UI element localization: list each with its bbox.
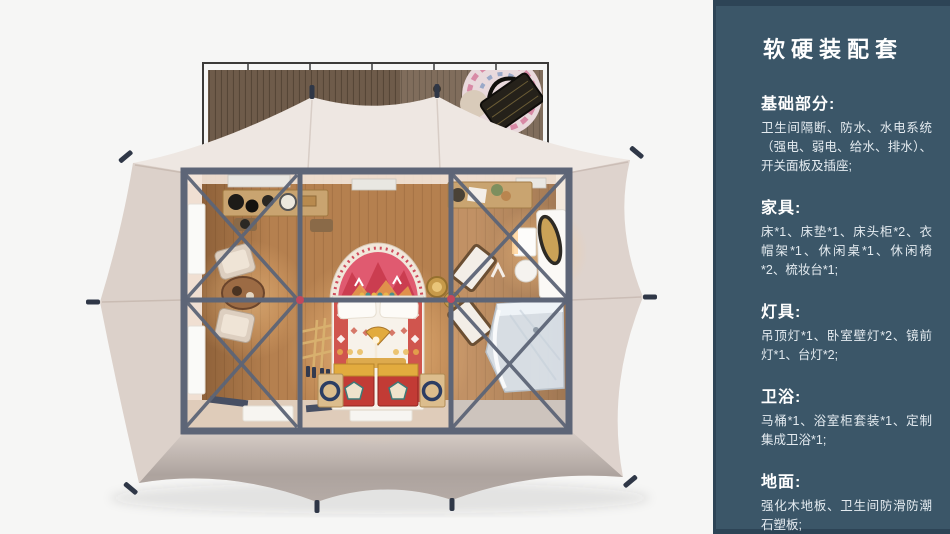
tent-stake-left	[86, 300, 100, 305]
window-left-lower	[188, 326, 205, 394]
tent-stake-top-2	[435, 84, 440, 98]
section-basics-body: 卫生间隔断、防水、水电系统（强电、弱电、给水、排水）、开关面板及插座;	[761, 119, 932, 176]
section-furniture: 家具: 床*1、床垫*1、床头柜*2、衣帽架*1、休闲桌*1、休闲椅*2、梳妆台…	[761, 194, 932, 280]
window-left-upper	[188, 204, 205, 274]
frame-joint-left	[296, 296, 304, 304]
entry-band-right	[452, 400, 568, 428]
sidebar-title: 软硬装配套	[734, 32, 932, 64]
section-lighting: 灯具: 吊顶灯*1、卧室壁灯*2、镜前灯*1、台灯*2;	[761, 298, 932, 365]
section-furniture-body: 床*1、床垫*1、床头柜*2、衣帽架*1、休闲桌*1、休闲椅*2、梳妆台*1;	[761, 223, 932, 280]
section-flooring-heading: 地面:	[761, 468, 932, 492]
section-bathroom-body: 马桶*1、浴室柜套装*1、定制集成卫浴*1;	[761, 412, 932, 450]
section-lighting-heading: 灯具:	[761, 298, 932, 322]
room	[186, 172, 588, 445]
nightstand-right	[420, 374, 445, 407]
stool-left-2	[310, 219, 333, 232]
hat-2	[246, 200, 259, 213]
section-basics-heading: 基础部分:	[761, 90, 932, 114]
console-table-right	[448, 182, 532, 208]
page: 软硬装配套 基础部分: 卫生间隔断、防水、水电系统（强电、弱电、给水、排水）、开…	[0, 0, 950, 534]
tent-stake-bottom-2	[315, 500, 320, 513]
console-box	[302, 196, 316, 206]
gold-tray-table	[427, 277, 447, 297]
section-flooring: 地面: 强化木地板、卫生间防滑防潮石塑板;	[761, 468, 932, 534]
floorplan-render	[0, 0, 713, 534]
nightstand-left	[318, 374, 343, 407]
section-bathroom-heading: 卫浴:	[761, 383, 932, 407]
section-furniture-heading: 家具:	[761, 194, 932, 218]
section-flooring-body: 强化木地板、卫生间防滑防潮石塑板;	[761, 497, 932, 534]
section-basics: 基础部分: 卫生间隔断、防水、水电系统（强电、弱电、给水、排水）、开关面板及插座…	[761, 90, 932, 176]
tent-stake-top-1	[310, 85, 315, 99]
tent-stake-bottom-1	[450, 498, 455, 511]
spec-sidebar: 软硬装配套 基础部分: 卫生间隔断、防水、水电系统（强电、弱电、给水、排水）、开…	[713, 0, 950, 534]
frame-joint-right	[447, 295, 455, 303]
plant	[491, 184, 503, 196]
section-lighting-body: 吊顶灯*1、卧室壁灯*2、镜前灯*1、台灯*2;	[761, 327, 932, 365]
round-table	[222, 277, 264, 309]
section-bathroom: 卫浴: 马桶*1、浴室柜套装*1、定制集成卫浴*1;	[761, 383, 932, 450]
tent-stake-right	[643, 295, 657, 300]
wall-clock	[280, 194, 296, 210]
plant-pot	[501, 191, 511, 201]
hat-1	[228, 194, 244, 210]
